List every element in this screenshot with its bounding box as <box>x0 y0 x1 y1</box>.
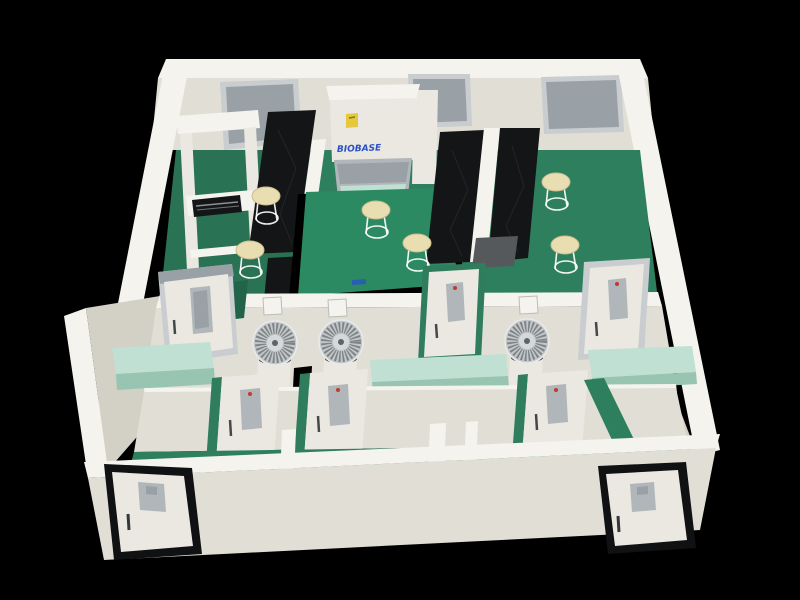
door-handle <box>436 324 437 338</box>
door-sign-icon <box>453 286 457 290</box>
warning-sticker-icon <box>346 113 358 128</box>
door-window <box>138 482 166 512</box>
door-handle <box>128 514 129 530</box>
switch-box <box>328 299 347 317</box>
island-tag <box>352 279 366 285</box>
biosafety-cabinet: BIOBASE <box>326 84 438 198</box>
door-sign-icon <box>248 392 252 396</box>
door-sign-icon <box>615 282 619 286</box>
lab-3d-render: BIOBASE <box>0 0 800 600</box>
switch-box <box>519 296 538 314</box>
black-bench-right <box>426 128 540 268</box>
interior-door-lower-2 <box>294 369 368 460</box>
interior-door-lower-1 <box>206 373 280 463</box>
window-panel-right <box>541 75 624 134</box>
interior-door-right <box>578 258 650 360</box>
door-sign-icon <box>637 486 648 495</box>
bench-end-gray-cabinet <box>472 236 518 268</box>
door-handle <box>536 414 537 430</box>
door-handle <box>618 516 619 532</box>
door-handle <box>230 420 231 436</box>
door-handle <box>596 322 597 336</box>
entry-door-left <box>104 464 202 560</box>
door-sign-icon <box>554 388 558 392</box>
interior-door-center <box>418 263 486 363</box>
side-cabinet <box>412 90 438 184</box>
switch-box <box>263 297 282 315</box>
door-handle <box>174 320 175 334</box>
door-sign-icon <box>146 486 157 495</box>
door-sign-icon <box>336 388 340 392</box>
cabinet-brand-label: BIOBASE <box>337 143 382 155</box>
back-wall-top-cap <box>158 59 648 78</box>
pale-bench <box>112 342 215 390</box>
door-handle <box>318 416 319 432</box>
entry-door-right <box>598 462 696 554</box>
lab-scene-canvas: BIOBASE <box>0 0 800 600</box>
cabinet-work-chamber <box>337 162 409 184</box>
